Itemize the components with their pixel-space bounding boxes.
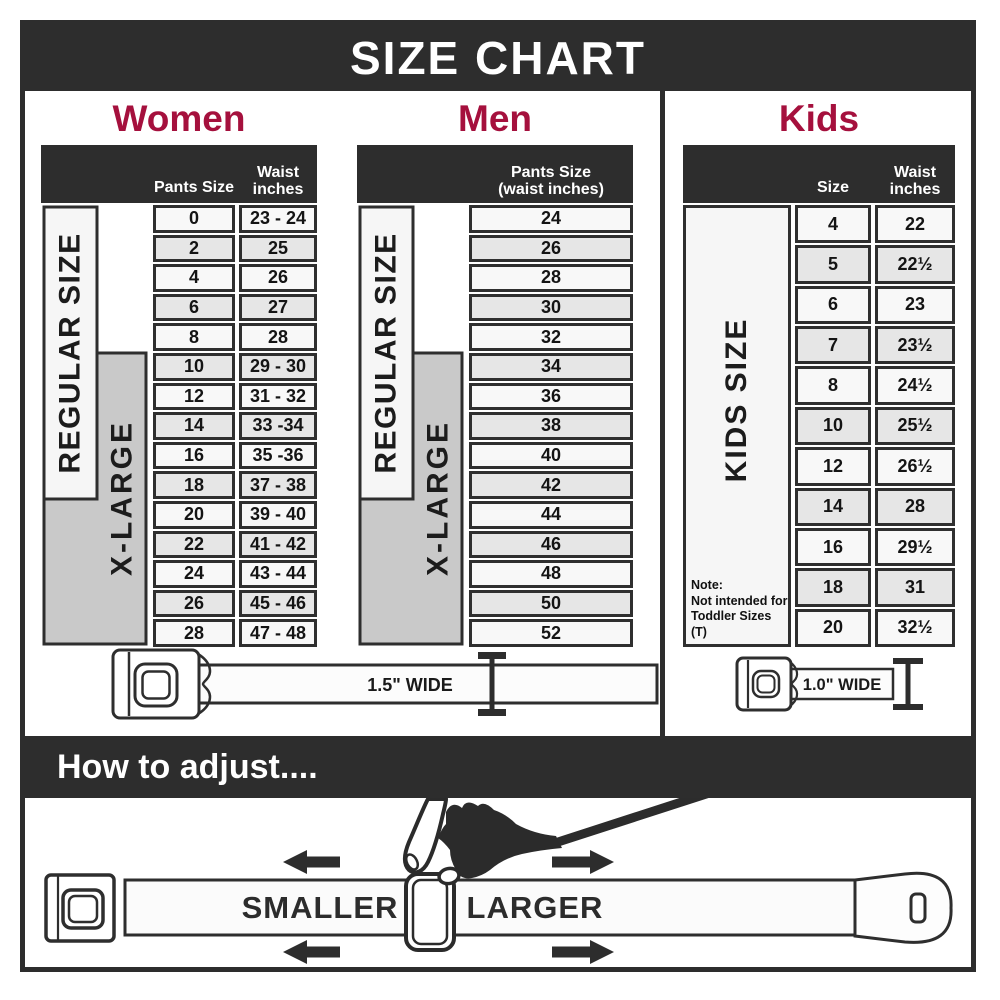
waist-cell: 31 - 32	[239, 383, 317, 411]
pants-size-cell: 38	[469, 412, 633, 440]
table-row: 1629½	[795, 528, 955, 566]
women-size-category-labels: REGULAR SIZE X-LARGE	[41, 205, 149, 647]
right-arrow-icon	[552, 850, 614, 874]
seatbelt-buckle-icon	[113, 650, 210, 718]
waist-cell: 26½	[875, 447, 955, 485]
table-row: 1433 -34	[153, 412, 317, 440]
waist-cell: 45 - 46	[239, 590, 317, 618]
kids-size-label: KIDS SIZE	[720, 317, 754, 482]
table-row: 2241 - 42	[153, 531, 317, 559]
size-cell: 7	[795, 326, 871, 364]
women-table-header: Pants Size Waist inches	[41, 145, 317, 203]
table-row: 32	[469, 323, 633, 351]
pants-size-cell: 34	[469, 353, 633, 381]
pants-size-cell: 10	[153, 353, 235, 381]
how-to-adjust-heading: How to adjust....	[25, 736, 971, 798]
size-cell: 16	[795, 528, 871, 566]
waist-cell: 23½	[875, 326, 955, 364]
women-waist-header: Waist inches	[239, 164, 317, 198]
size-cell: 18	[795, 568, 871, 606]
pants-size-cell: 48	[469, 560, 633, 588]
waist-cell: 35 -36	[239, 442, 317, 470]
size-cell: 12	[795, 447, 871, 485]
men-table-body: REGULAR SIZE X-LARGE 24 26 28 30 32 34 3…	[357, 205, 633, 647]
table-row: 1428	[795, 488, 955, 526]
kids-panel: Kids Size Waist inches KIDS SIZE Note:	[665, 91, 971, 736]
page-title: SIZE CHART	[25, 25, 971, 91]
left-arrow-icon	[283, 850, 340, 874]
table-row: 1029 - 30	[153, 353, 317, 381]
pants-size-cell: 32	[469, 323, 633, 351]
pants-size-cell: 16	[153, 442, 235, 470]
adjustment-illustration: SMALLER LARGER	[25, 798, 971, 967]
table-row: 38	[469, 412, 633, 440]
table-row: 1231 - 32	[153, 383, 317, 411]
women-title: Women	[41, 97, 317, 143]
waist-cell: 25½	[875, 407, 955, 445]
kids-title: Kids	[683, 97, 955, 143]
waist-header-line1: Waist	[239, 164, 317, 181]
men-pants-size-header: Pants Size (waist inches)	[469, 164, 633, 198]
size-cell: 4	[795, 205, 871, 243]
waist-cell: 31	[875, 568, 955, 606]
pants-size-cell: 40	[469, 442, 633, 470]
pants-size-cell: 12	[153, 383, 235, 411]
men-header-line2: (waist inches)	[469, 181, 633, 198]
pants-size-cell: 24	[469, 205, 633, 233]
size-chart-page: SIZE CHART Women Pants Size Waist inches	[0, 0, 1000, 1000]
table-row: 1226½	[795, 447, 955, 485]
waist-cell: 28	[239, 323, 317, 351]
larger-label: LARGER	[430, 890, 640, 926]
table-row: 1837 - 38	[153, 471, 317, 499]
women-regular-size-label: REGULAR SIZE	[54, 232, 87, 473]
waist-cell: 26	[239, 264, 317, 292]
note-line1: Not intended for	[691, 594, 788, 610]
waist-cell: 23	[875, 286, 955, 324]
left-arrow-icon	[283, 940, 340, 964]
men-size-category-labels: REGULAR SIZE X-LARGE	[357, 205, 465, 647]
waist-header-line2: inches	[239, 181, 317, 198]
waist-cell: 27	[239, 294, 317, 322]
kids-column: Kids Size Waist inches KIDS SIZE Note:	[683, 97, 955, 647]
waist-header-line1: Waist	[875, 164, 955, 181]
women-category-graphic: REGULAR SIZE X-LARGE	[41, 205, 149, 647]
belt-tip-slot	[911, 894, 925, 922]
size-cell: 14	[795, 488, 871, 526]
women-xlarge-label: X-LARGE	[106, 420, 139, 576]
belt-tip	[855, 873, 951, 942]
pants-size-cell: 0	[153, 205, 235, 233]
waist-cell: 22	[875, 205, 955, 243]
kids-note: Note: Not intended for Toddler Sizes (T)	[691, 578, 788, 640]
adult-belt-diagram: 1.5" WIDE	[33, 640, 659, 728]
table-row: 44	[469, 501, 633, 529]
pants-size-cell: 28	[469, 264, 633, 292]
table-row: 623	[795, 286, 955, 324]
pants-size-cell: 20	[153, 501, 235, 529]
kids-size-category-labels: KIDS SIZE Note: Not intended for Toddler…	[683, 205, 791, 647]
women-column: Women Pants Size Waist inches REGULAR SI…	[41, 97, 317, 647]
size-cell: 20	[795, 609, 871, 647]
table-row: 824½	[795, 366, 955, 404]
men-category-graphic: REGULAR SIZE X-LARGE	[357, 205, 465, 647]
size-cell: 6	[795, 286, 871, 324]
size-cell: 8	[795, 366, 871, 404]
table-row: 34	[469, 353, 633, 381]
waist-cell: 32½	[875, 609, 955, 647]
table-row: 1831	[795, 568, 955, 606]
belt-width-label: 1.5" WIDE	[367, 675, 453, 695]
pants-size-cell: 22	[153, 531, 235, 559]
table-row: 2443 - 44	[153, 560, 317, 588]
men-column: Men Pants Size (waist inches) REGULAR SI…	[357, 97, 633, 647]
width-measure-icon	[893, 658, 923, 710]
women-pants-size-header: Pants Size	[153, 179, 235, 196]
men-rows: 24 26 28 30 32 34 36 38 40 42 44 46 48 5…	[469, 205, 633, 647]
table-row: 28	[469, 264, 633, 292]
table-row: 26	[469, 235, 633, 263]
pulled-strap	[558, 798, 731, 842]
seatbelt-buckle-icon	[46, 875, 114, 941]
men-regular-size-label: REGULAR SIZE	[370, 232, 403, 473]
seatbelt-buckle-icon	[737, 658, 797, 710]
size-cell: 5	[795, 245, 871, 283]
men-table-header: Pants Size (waist inches)	[357, 145, 633, 203]
pants-size-cell: 50	[469, 590, 633, 618]
waist-cell: 43 - 44	[239, 560, 317, 588]
waist-cell: 22½	[875, 245, 955, 283]
men-title: Men	[357, 97, 633, 143]
table-row: 522½	[795, 245, 955, 283]
men-header-line1: Pants Size	[469, 164, 633, 181]
waist-cell: 41 - 42	[239, 531, 317, 559]
table-row: 627	[153, 294, 317, 322]
waist-cell: 28	[875, 488, 955, 526]
table-row: 50	[469, 590, 633, 618]
men-xlarge-label: X-LARGE	[422, 420, 455, 576]
pants-size-cell: 18	[153, 471, 235, 499]
kids-waist-header: Waist inches	[875, 164, 955, 198]
right-arrow-icon	[552, 940, 614, 964]
table-row: 2645 - 46	[153, 590, 317, 618]
table-row: 023 - 24	[153, 205, 317, 233]
kids-rows: 422 522½ 623 723½ 824½ 1025½ 1226½ 1428 …	[795, 205, 955, 647]
waist-cell: 23 - 24	[239, 205, 317, 233]
chart-frame: SIZE CHART Women Pants Size Waist inches	[20, 20, 976, 972]
table-row: 40	[469, 442, 633, 470]
waist-cell: 24½	[875, 366, 955, 404]
pants-size-cell: 2	[153, 235, 235, 263]
table-row: 723½	[795, 326, 955, 364]
note-line2: Toddler Sizes (T)	[691, 609, 788, 640]
pants-size-cell: 4	[153, 264, 235, 292]
pants-size-cell: 26	[153, 590, 235, 618]
pants-size-cell: 46	[469, 531, 633, 559]
table-row: 426	[153, 264, 317, 292]
size-cell: 10	[795, 407, 871, 445]
waist-header-line2: inches	[875, 181, 955, 198]
waist-cell: 37 - 38	[239, 471, 317, 499]
table-row: 24	[469, 205, 633, 233]
smaller-label: SMALLER	[215, 890, 425, 926]
table-row: 36	[469, 383, 633, 411]
waist-cell: 29 - 30	[239, 353, 317, 381]
note-title: Note:	[691, 578, 788, 594]
table-row: 1635 -36	[153, 442, 317, 470]
women-rows: 023 - 24 225 426 627 828 1029 - 30 1231 …	[153, 205, 317, 647]
pants-size-cell: 24	[153, 560, 235, 588]
waist-cell: 29½	[875, 528, 955, 566]
table-row: 225	[153, 235, 317, 263]
tables-section: Women Pants Size Waist inches REGULAR SI…	[25, 91, 971, 736]
pants-size-cell: 26	[469, 235, 633, 263]
kids-table-body: KIDS SIZE Note: Not intended for Toddler…	[683, 205, 955, 647]
waist-cell: 33 -34	[239, 412, 317, 440]
table-row: 1025½	[795, 407, 955, 445]
adult-panel: Women Pants Size Waist inches REGULAR SI…	[25, 91, 665, 736]
table-row: 42	[469, 471, 633, 499]
pants-size-cell: 36	[469, 383, 633, 411]
pants-size-cell: 44	[469, 501, 633, 529]
adjustment-belt-graphic	[25, 798, 971, 967]
pants-size-cell: 8	[153, 323, 235, 351]
kids-belt-diagram: 1.0" WIDE	[731, 644, 943, 724]
pants-size-cell: 30	[469, 294, 633, 322]
table-row: 30	[469, 294, 633, 322]
table-row: 46	[469, 531, 633, 559]
table-row: 422	[795, 205, 955, 243]
kids-size-header: Size	[795, 179, 871, 196]
table-row: 828	[153, 323, 317, 351]
table-row: 2032½	[795, 609, 955, 647]
belt-width-label: 1.0" WIDE	[803, 676, 881, 694]
table-row: 2039 - 40	[153, 501, 317, 529]
kids-size-box: KIDS SIZE Note: Not intended for Toddler…	[683, 205, 791, 647]
table-row: 48	[469, 560, 633, 588]
pants-size-cell: 42	[469, 471, 633, 499]
waist-cell: 25	[239, 235, 317, 263]
waist-cell: 39 - 40	[239, 501, 317, 529]
kids-table-header: Size Waist inches	[683, 145, 955, 203]
pants-size-cell: 6	[153, 294, 235, 322]
pants-size-cell: 14	[153, 412, 235, 440]
women-table-body: REGULAR SIZE X-LARGE 023 - 24 225 426 62…	[41, 205, 317, 647]
